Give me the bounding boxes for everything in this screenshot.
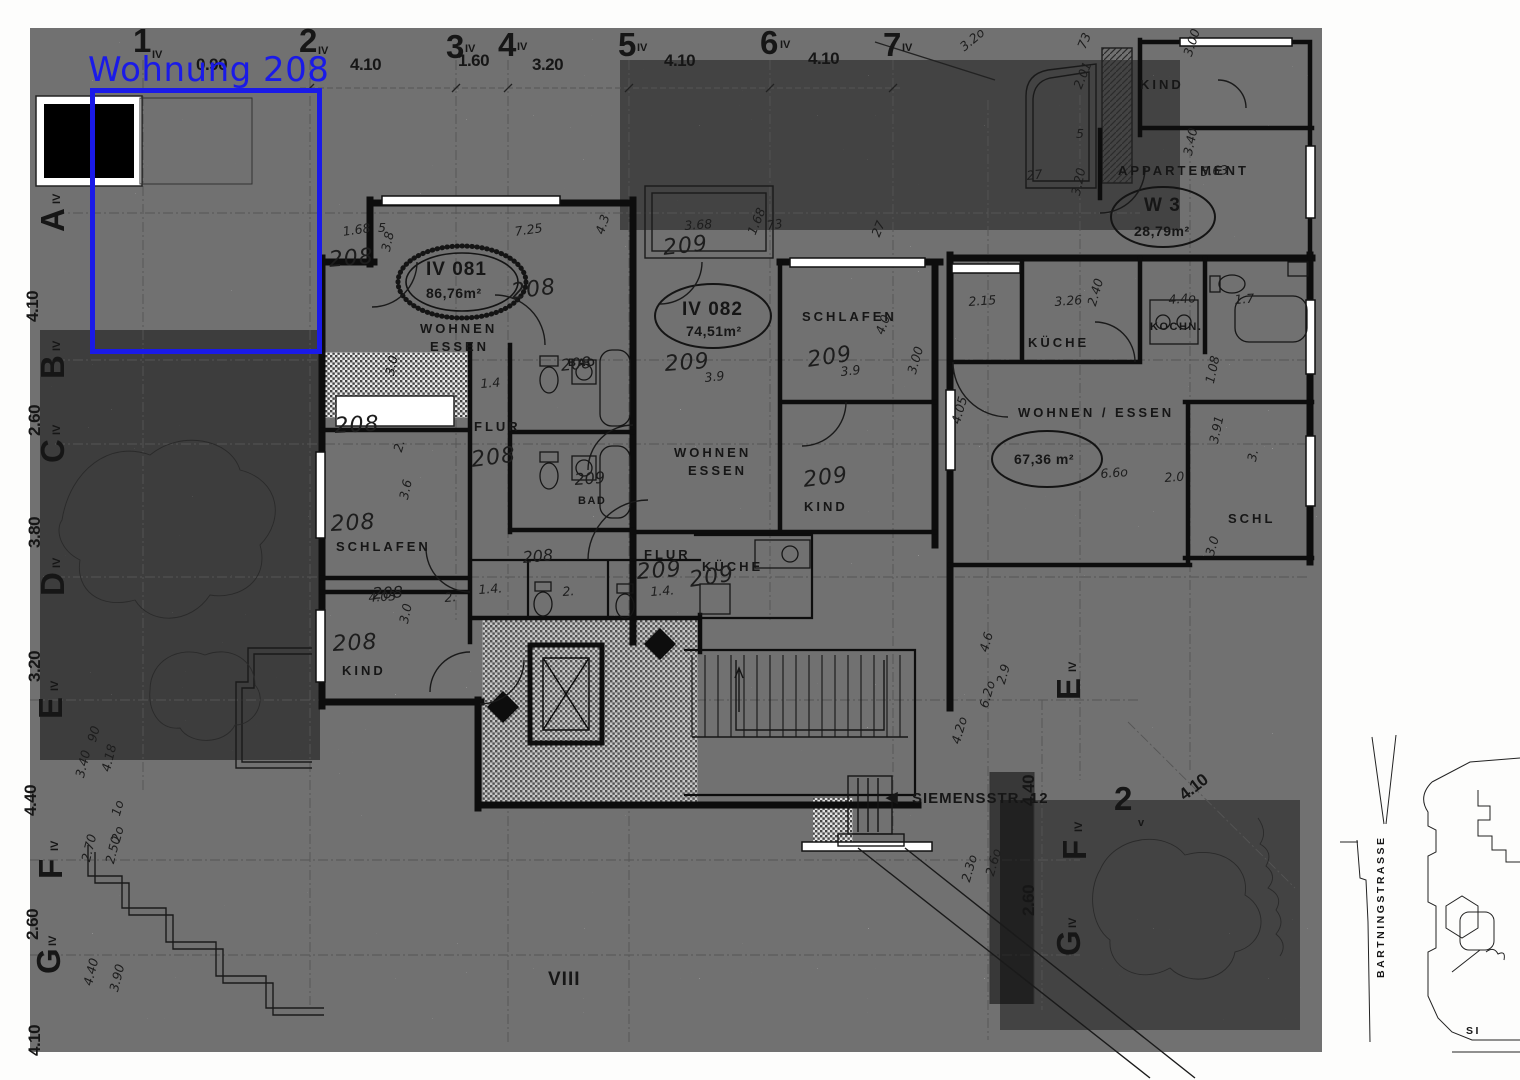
plan-label: 208 bbox=[470, 445, 517, 472]
plan-label: 4.05 bbox=[950, 395, 970, 425]
plan-label: v bbox=[1138, 818, 1144, 829]
plan-label: IV bbox=[52, 194, 63, 204]
plan-label: 2.01 bbox=[1072, 60, 1094, 90]
grid-col-4: 4 bbox=[498, 28, 514, 61]
plan-label: 4.0 bbox=[874, 313, 893, 336]
plan-label: 3.90 bbox=[108, 963, 127, 993]
plan-label: 208 bbox=[328, 246, 375, 272]
plan-label: 1.68 bbox=[342, 222, 371, 238]
grid-col-2v: 2 bbox=[1114, 782, 1130, 815]
plan-label: 4.03 bbox=[368, 590, 397, 604]
plan-label: 3.8 bbox=[380, 231, 396, 253]
room-label-kueche-right: KÜCHE bbox=[1028, 336, 1089, 349]
plan-label: 2. bbox=[444, 591, 457, 604]
grid-row-c: C bbox=[36, 441, 69, 463]
plan-label: 2. bbox=[562, 585, 575, 598]
plan-label: IV bbox=[517, 42, 527, 53]
plan-label: IV bbox=[902, 43, 912, 54]
direction-arrow-icon: ◀ bbox=[886, 790, 899, 805]
plan-label: 209 bbox=[662, 233, 709, 260]
plan-label: 2.3o bbox=[960, 854, 980, 884]
plan-label: 4.10 bbox=[26, 1025, 43, 1056]
plan-label: 2. bbox=[392, 439, 407, 454]
plan-label: 208 bbox=[510, 277, 557, 304]
plan-label: 3. bbox=[1246, 448, 1261, 462]
plan-label: IV bbox=[52, 341, 63, 351]
plan-label: 2.9 bbox=[995, 663, 1012, 686]
plan-label: 3.00 bbox=[1182, 28, 1202, 58]
plan-label: 3.40 bbox=[1182, 127, 1200, 157]
plan-label: 1.4. bbox=[478, 582, 503, 596]
plan-label: 2.50 bbox=[104, 835, 123, 865]
plan-label: 4.18 bbox=[100, 743, 119, 773]
plan-label: 3.9 bbox=[704, 370, 725, 385]
plan-label: 1.4 bbox=[480, 377, 501, 391]
plan-label: 5.63 bbox=[1200, 164, 1229, 178]
plan-label: IV bbox=[50, 681, 61, 691]
apartment-annotation-label[interactable]: Wohnung 208 bbox=[88, 50, 329, 90]
grid-row-e-right: E bbox=[1052, 680, 1085, 700]
room-label-wohnen-082: WOHNEN bbox=[674, 446, 751, 459]
plan-label: 209 bbox=[574, 470, 606, 488]
plan-label: ESSEN bbox=[430, 340, 489, 353]
plan-label: 4.2o bbox=[950, 716, 970, 746]
grid-row-f: F bbox=[34, 861, 67, 879]
plan-label: 208 bbox=[522, 547, 554, 566]
plan-label: ESSEN bbox=[688, 464, 747, 477]
grid-row-e: E bbox=[34, 699, 67, 719]
plan-label: 4.40 bbox=[22, 785, 39, 816]
floor-roman-numeral: VIII bbox=[548, 970, 581, 989]
plan-label: 2.40 bbox=[1086, 277, 1106, 307]
plan-label: 5 bbox=[1076, 128, 1084, 141]
apartment-area-right: 67,36 m² bbox=[1014, 452, 1074, 466]
room-label-bad-lower: BAD bbox=[578, 496, 606, 507]
plan-label: IV bbox=[1068, 918, 1079, 928]
plan-label: 3.20 bbox=[1070, 167, 1088, 197]
plan-label: 208 bbox=[560, 355, 592, 374]
plan-label: 209 bbox=[688, 564, 736, 592]
plan-label: IV bbox=[52, 425, 63, 435]
plan-label: 1.4. bbox=[650, 584, 675, 598]
plan-label: 1o bbox=[110, 799, 126, 817]
plan-label: 6.2o bbox=[978, 680, 998, 710]
plan-label: 2.60 bbox=[26, 405, 43, 436]
plan-label: 3.2o bbox=[958, 26, 987, 53]
plan-label: IV bbox=[52, 558, 63, 568]
plan-label: IV bbox=[48, 936, 59, 946]
plan-label: 4.10 bbox=[808, 50, 839, 67]
street-label-bartningstrasse: BARTNINGSTRASSE bbox=[1376, 835, 1387, 978]
plan-label: 3.40 bbox=[74, 749, 93, 779]
plan-label: 1.60 bbox=[458, 52, 489, 69]
plan-label: IV bbox=[637, 43, 647, 54]
plan-label: IV bbox=[1074, 822, 1085, 832]
grid-col-5: 5 bbox=[618, 28, 634, 61]
plan-label: 209 bbox=[802, 465, 849, 492]
plan-label: 2.6o bbox=[984, 848, 1004, 878]
plan-label: 1.68 bbox=[746, 206, 768, 236]
plan-label: 73 bbox=[1076, 31, 1094, 50]
plan-label: 3.68 bbox=[684, 218, 713, 232]
grid-row-d: D bbox=[36, 574, 69, 596]
grid-col-7: 7 bbox=[883, 28, 899, 61]
plan-label: 7.25 bbox=[514, 222, 543, 238]
plan-label: IV bbox=[1068, 662, 1079, 672]
plan-label: 1.08 bbox=[1204, 355, 1222, 385]
apartment-id-w3: W 3 bbox=[1144, 196, 1181, 215]
plan-label: 3.80 bbox=[26, 517, 43, 548]
plan-label: 3.0 bbox=[1204, 535, 1221, 558]
plan-label: 3.6 bbox=[398, 479, 414, 501]
grid-row-g-right: G bbox=[1052, 932, 1085, 956]
plan-label: IV bbox=[50, 841, 61, 851]
grid-row-f-right: F bbox=[1058, 842, 1091, 860]
plan-label: 3.20 bbox=[532, 56, 563, 73]
room-label-kochnische: KOCHN. bbox=[1150, 322, 1202, 333]
apartment-annotation-box[interactable] bbox=[90, 88, 322, 354]
plan-label: 208 bbox=[334, 414, 380, 438]
plan-label: 3.9 bbox=[840, 364, 861, 379]
grid-row-g: G bbox=[32, 950, 65, 974]
plan-label: 2.60 bbox=[1020, 885, 1037, 916]
plan-label: 4.6 bbox=[978, 631, 995, 654]
room-label-kind-top: KIND bbox=[1140, 78, 1184, 91]
plan-label: 4.4o bbox=[1168, 292, 1196, 306]
floorplan-screenshot: 1IV2IV3IV4IV5IV6IV7IVAIVBIVCIVDIVEIVFIVG… bbox=[0, 0, 1520, 1080]
plan-label: 4.10 bbox=[1176, 771, 1211, 804]
plan-label: 4.10 bbox=[350, 56, 381, 73]
grid-row-b: B bbox=[36, 357, 69, 379]
street-label-siemensstrasse: SIEMENSSTR. 12 bbox=[912, 791, 1049, 806]
apartment-id-iv081: IV 081 bbox=[426, 260, 487, 279]
plan-label: 209 bbox=[636, 559, 682, 584]
room-label-wohnen-essen-right: WOHNEN / ESSEN bbox=[1018, 406, 1174, 419]
plan-label: 3.91 bbox=[1208, 415, 1226, 445]
plan-label: 1.7 bbox=[1234, 293, 1255, 307]
plan-label: IV bbox=[780, 40, 790, 51]
plan-label: 27 bbox=[870, 219, 888, 238]
plan-label: 2.60 bbox=[24, 909, 41, 940]
plan-label: 3.20 bbox=[26, 651, 43, 682]
plan-label: 6.6o bbox=[1100, 466, 1128, 480]
apartment-area-iv082: 74,51m² bbox=[686, 324, 742, 338]
plan-label: 3.00 bbox=[906, 345, 926, 375]
plan-label: 73 bbox=[766, 218, 783, 233]
plan-label: 90 bbox=[86, 725, 102, 744]
plan-label: 4.40 bbox=[82, 957, 101, 987]
plan-label: 2.0 bbox=[1164, 471, 1185, 485]
apartment-area-w3: 28,79m² bbox=[1134, 224, 1190, 238]
room-label-schl-cut: SCHL bbox=[1228, 512, 1275, 525]
grid-row-a: A bbox=[36, 210, 69, 232]
plan-label: 208 bbox=[330, 512, 376, 536]
room-label-appartement: APPARTEMENT bbox=[1118, 164, 1249, 177]
apartment-area-iv081: 86,76m² bbox=[426, 286, 482, 300]
plan-label: 2.15 bbox=[968, 294, 997, 308]
room-label-schlafen-081: SCHLAFEN bbox=[336, 540, 431, 553]
plan-label: 4.10 bbox=[24, 291, 41, 322]
apartment-id-iv082: IV 082 bbox=[682, 300, 743, 319]
room-label-kind-082: KIND bbox=[804, 500, 848, 513]
plan-label: 27 bbox=[1026, 168, 1043, 182]
plan-label: 2.70 bbox=[80, 833, 99, 863]
grid-col-6: 6 bbox=[760, 26, 776, 59]
plan-label: 4.10 bbox=[664, 52, 695, 69]
room-label-flur-081: FLUR bbox=[474, 420, 521, 433]
plan-label: 3.0 bbox=[398, 603, 414, 625]
plan-label: 3.0 bbox=[384, 355, 400, 377]
room-label-kind-081: KIND bbox=[342, 664, 386, 677]
room-label-wohnen-081: WOHNEN bbox=[420, 322, 497, 335]
plan-label: 4.3 bbox=[594, 213, 612, 236]
street-label-si: SI bbox=[1466, 1026, 1481, 1037]
plan-label: 208 bbox=[332, 632, 378, 656]
plan-label: 3.26 bbox=[1054, 294, 1083, 308]
